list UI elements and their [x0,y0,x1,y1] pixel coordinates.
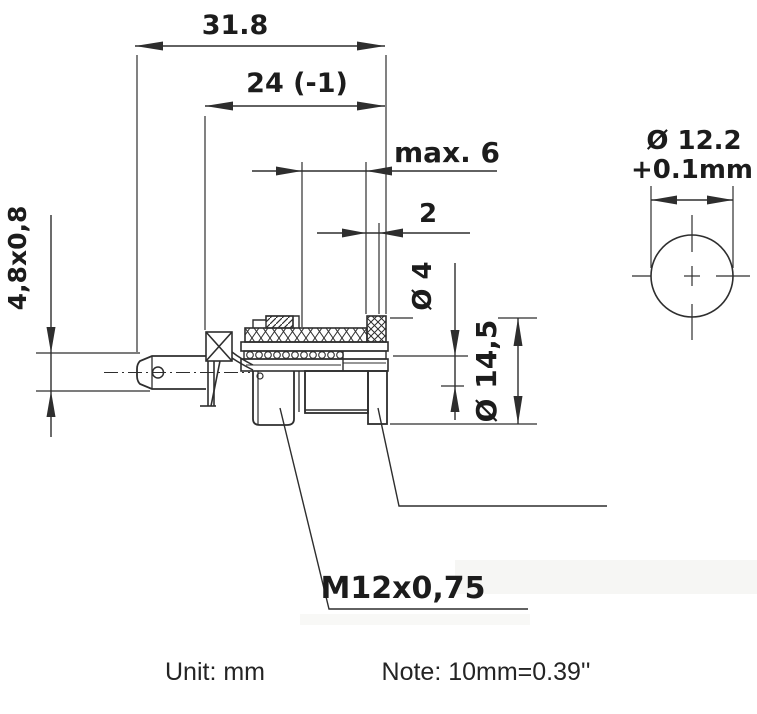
dim-label-diameter-12-2: Ø 12.2 [646,126,741,156]
dim-label-tolerance: +0.1mm [631,155,753,185]
washer-band [241,359,388,371]
dimension-24: 24 (-1) [205,68,385,330]
dimension-diameter-4: Ø 4 [393,261,468,420]
spring-detail [253,316,299,328]
thread-band [244,351,386,371]
dim-label-2: 2 [419,199,437,229]
flange-lip [241,342,388,351]
front-view: Ø 12.2 +0.1mm [631,126,753,340]
lower-assembly [253,371,387,425]
dim-label-tab: 4,8x0,8 [3,206,32,311]
banana-jack-drawing: 31.8 24 (-1) max. 6 2 Ø 4 [0,0,757,714]
side-view-body [104,316,388,425]
thread-callout-label: M12x0,75 [321,571,486,606]
dimension-2: 2 [317,199,470,314]
dimension-max-6: max. 6 [252,136,500,327]
background-artifact [300,614,530,625]
knurled-band [245,328,367,342]
dimension-31-8: 31.8 [135,10,386,352]
technical-drawing-page: 31.8 24 (-1) max. 6 2 Ø 4 [0,0,757,714]
insulator-block [367,316,386,342]
background-artifact [455,560,757,594]
conversion-note: Note: 10mm=0.39'' [382,658,591,686]
sleeve [305,371,368,413]
dim-label-max-6: max. 6 [394,136,500,169]
dim-label-diameter-4: Ø 4 [408,261,438,310]
footer-notes: Unit: mm Note: 10mm=0.39'' [165,658,590,686]
mounting-flange [368,371,387,424]
dim-label-diameter-14-5: Ø 14,5 [470,320,503,423]
dim-label-31-8: 31.8 [202,10,269,41]
thread-profile [247,352,344,359]
unit-note: Unit: mm [165,658,265,686]
panel-section [200,332,232,406]
dim-label-24: 24 (-1) [246,68,348,99]
dimension-diameter-14-5: Ø 14,5 [390,318,537,424]
contact-blade [232,352,253,370]
dimension-tab-4-8x0-8: 4,8x0,8 [3,206,150,437]
